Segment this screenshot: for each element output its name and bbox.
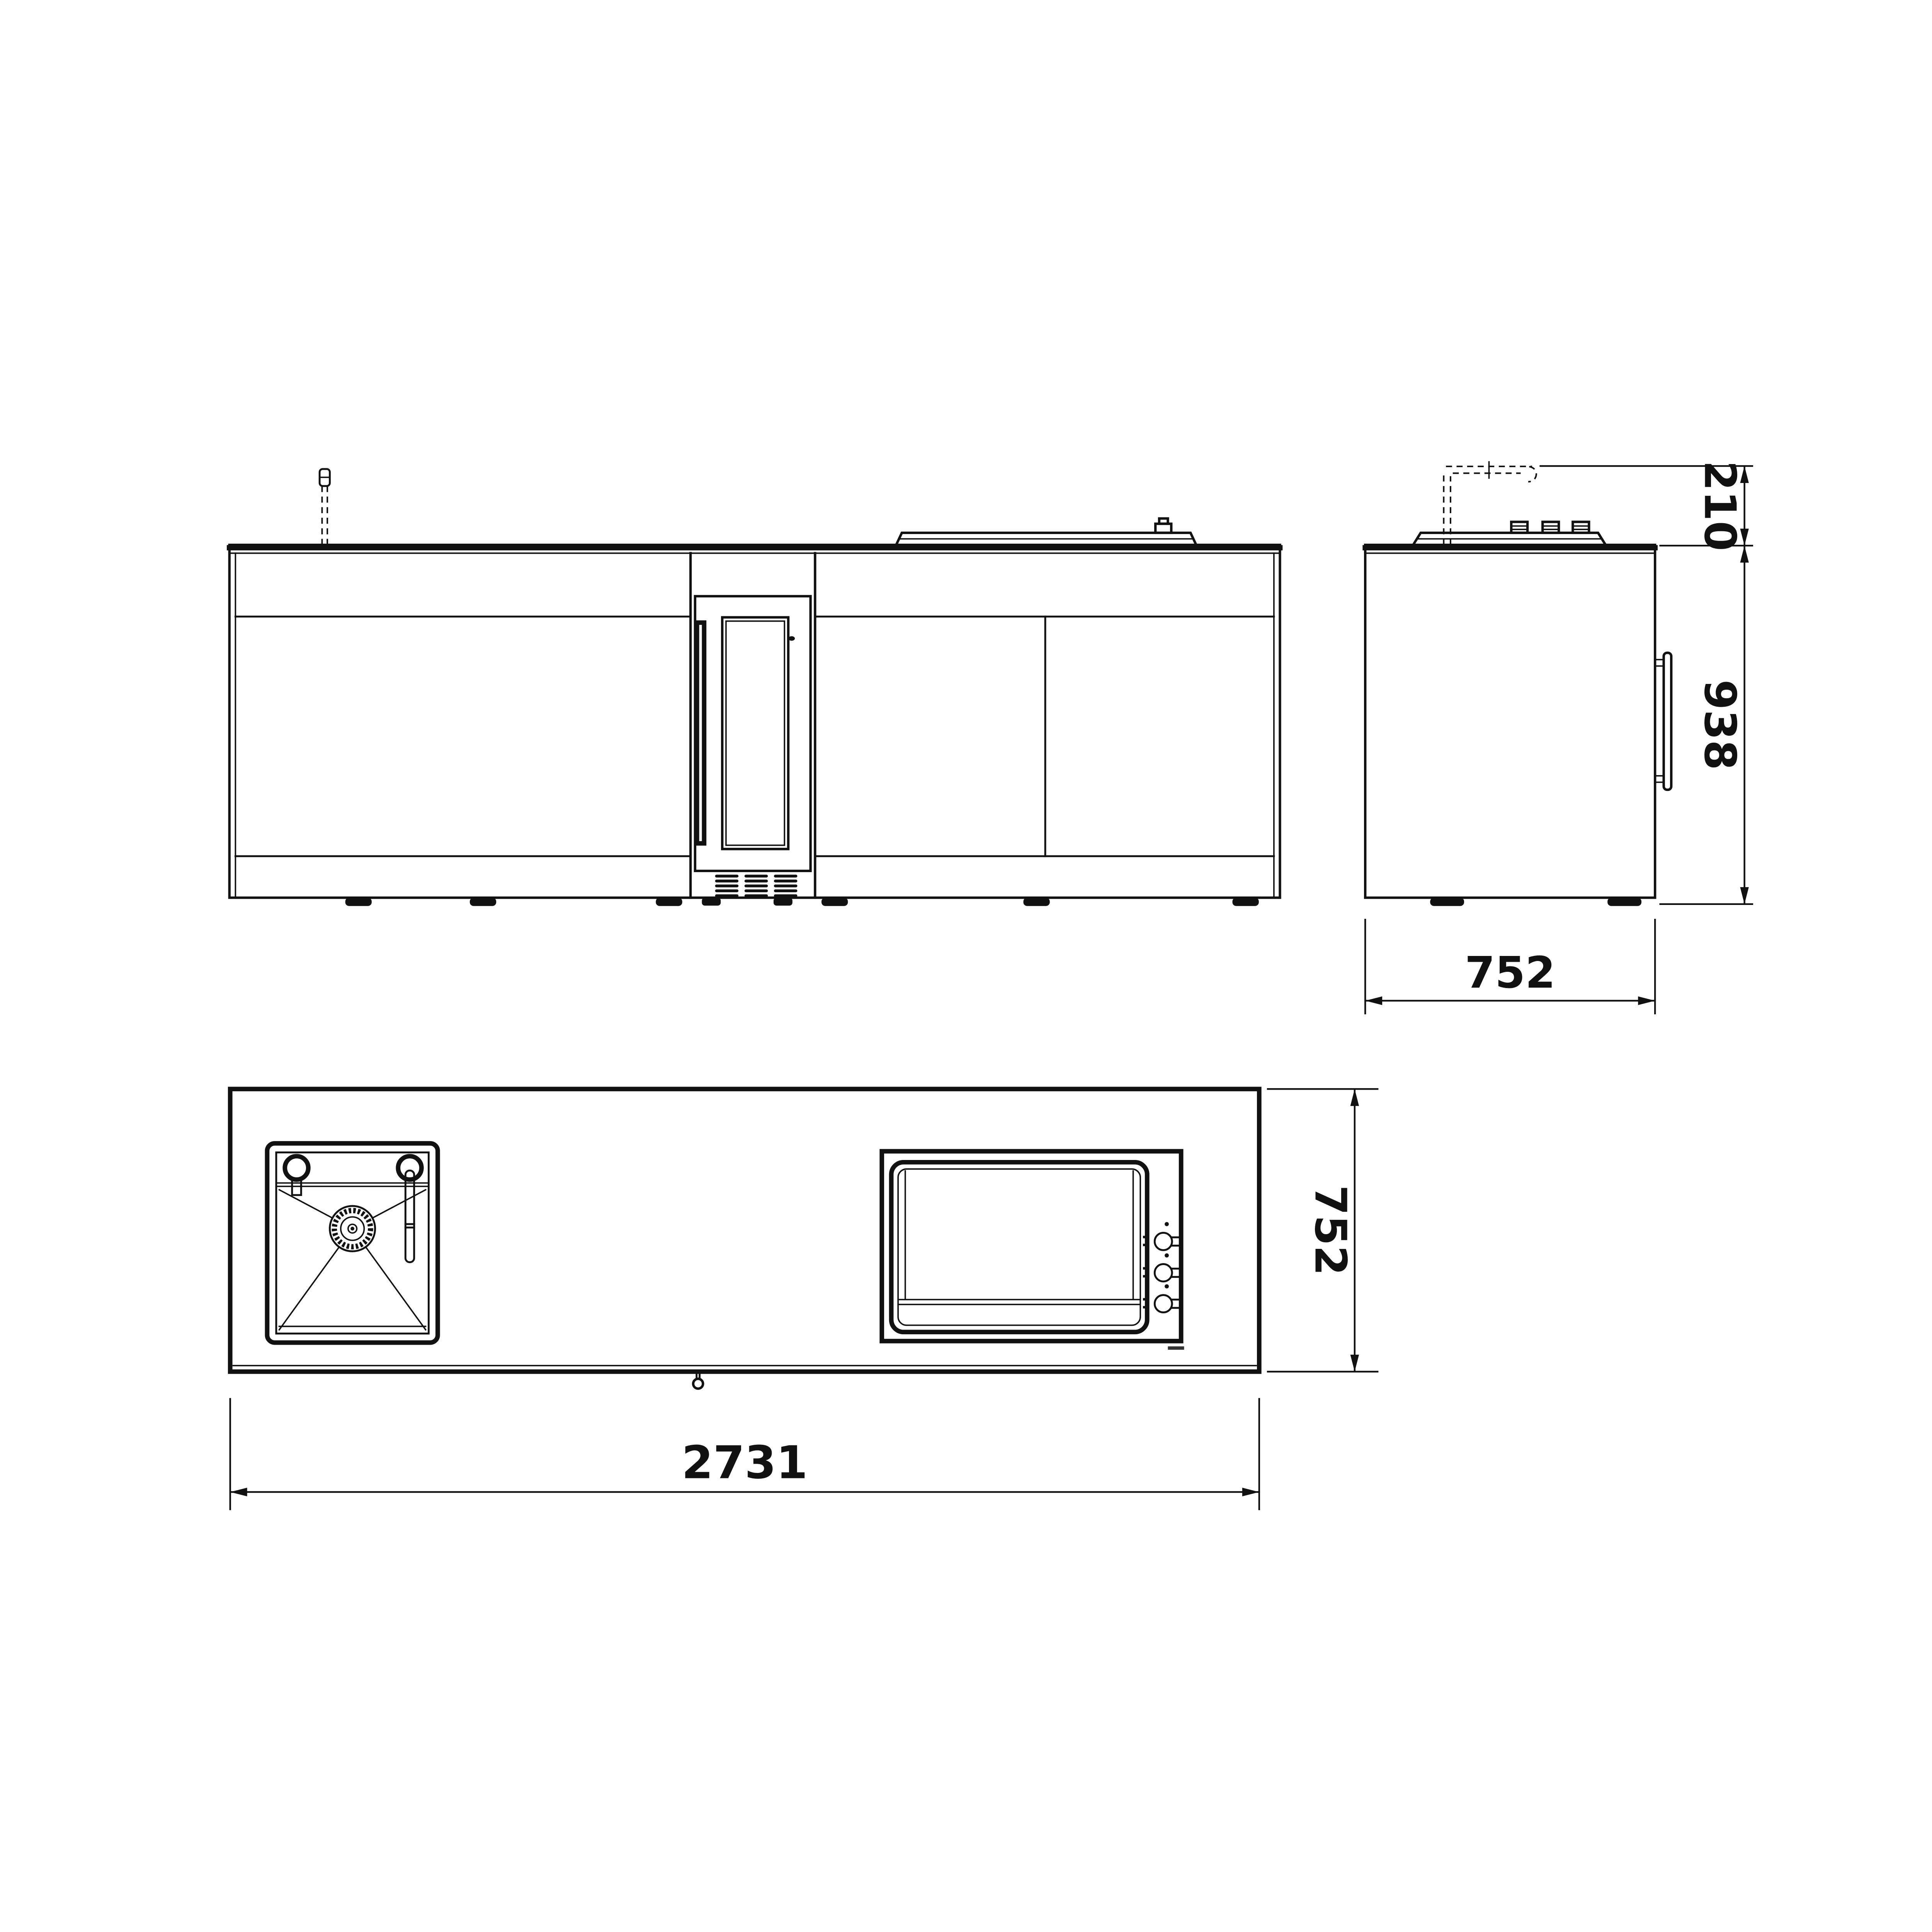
wine-cooler-glass-inner xyxy=(726,621,784,845)
faucet-plan xyxy=(398,1156,422,1262)
faucet-front xyxy=(320,469,330,545)
foot xyxy=(345,898,372,906)
faucet-lever-plan xyxy=(405,1170,414,1262)
wine-cooler-foot-right xyxy=(774,898,793,906)
dim-label-plan-depth: 752 xyxy=(1305,1185,1355,1276)
faucet-spout-hook-dashed xyxy=(1528,467,1536,482)
side-body-outline xyxy=(1365,545,1655,898)
gas-connection-hook xyxy=(693,1372,703,1389)
dim-height-upper: 210 xyxy=(1695,461,1749,551)
wine-cooler-handle xyxy=(697,622,704,843)
wine-cooler-lock-dot xyxy=(789,636,795,641)
foot xyxy=(1023,898,1049,906)
dimension-annotations: 210 938 752 752 xyxy=(230,461,1753,1510)
dim-side-depth: 752 xyxy=(1365,919,1655,1014)
grill-plan xyxy=(882,1151,1184,1350)
dim-height-body: 938 xyxy=(1695,546,1749,904)
wine-cooler-foot-left xyxy=(702,898,721,906)
dim-label-side-depth: 752 xyxy=(1465,948,1555,998)
cabinet-feet-front xyxy=(345,898,1259,906)
handle-bar xyxy=(1664,653,1672,789)
foot xyxy=(821,898,848,906)
dim-arrow xyxy=(1740,887,1748,904)
grill-lid-inner xyxy=(898,1169,1140,1325)
side-elevation-view xyxy=(1365,462,1671,906)
handle-stub-top xyxy=(1655,660,1663,666)
sink-plan xyxy=(267,1143,437,1343)
grill-burner-cap-top xyxy=(1159,519,1168,524)
plan-view xyxy=(230,1089,1259,1388)
dim-label-upper-height: 210 xyxy=(1695,461,1745,551)
faucet-hole-plan xyxy=(285,1156,308,1195)
dim-arrow xyxy=(1350,1089,1359,1106)
grill-knobs-side xyxy=(1511,522,1589,533)
dim-arrow xyxy=(1242,1488,1259,1496)
grill-top-side xyxy=(1413,522,1605,545)
grill-top-front xyxy=(896,519,1196,545)
dim-arrow xyxy=(230,1488,247,1496)
wine-cooler-glass xyxy=(722,617,788,849)
grill-unit-outline xyxy=(882,1151,1181,1341)
wine-cooler-vent-grille xyxy=(715,875,798,897)
dim-overall-width: 2731 xyxy=(230,1398,1259,1510)
foot xyxy=(1232,898,1259,906)
dim-arrow xyxy=(1350,1355,1359,1372)
grill-burner-cap xyxy=(1155,524,1171,532)
dim-plan-depth: 752 xyxy=(1267,1089,1379,1371)
foot xyxy=(1430,898,1464,906)
grill-lid xyxy=(891,1162,1147,1332)
brand-mark xyxy=(1168,1346,1184,1350)
foot xyxy=(1607,898,1641,906)
wine-cooler xyxy=(690,553,815,906)
dim-arrow xyxy=(1638,997,1655,1005)
sink-drain xyxy=(330,1206,375,1251)
dim-label-overall-width: 2731 xyxy=(682,1436,808,1489)
foot xyxy=(470,898,496,906)
handle-stub-bottom xyxy=(1655,776,1663,782)
side-door-handle xyxy=(1655,653,1671,789)
cabinet-feet-side xyxy=(1430,898,1641,906)
technical-drawing-canvas: 210 938 752 752 xyxy=(0,0,1932,1932)
drawing-sheet: 210 938 752 752 xyxy=(0,0,1932,1932)
dim-arrow xyxy=(1365,997,1382,1005)
countertop-plan-outline xyxy=(230,1089,1259,1371)
dim-label-body-height: 938 xyxy=(1695,680,1745,770)
foot xyxy=(656,898,682,906)
front-elevation-view xyxy=(230,469,1280,906)
